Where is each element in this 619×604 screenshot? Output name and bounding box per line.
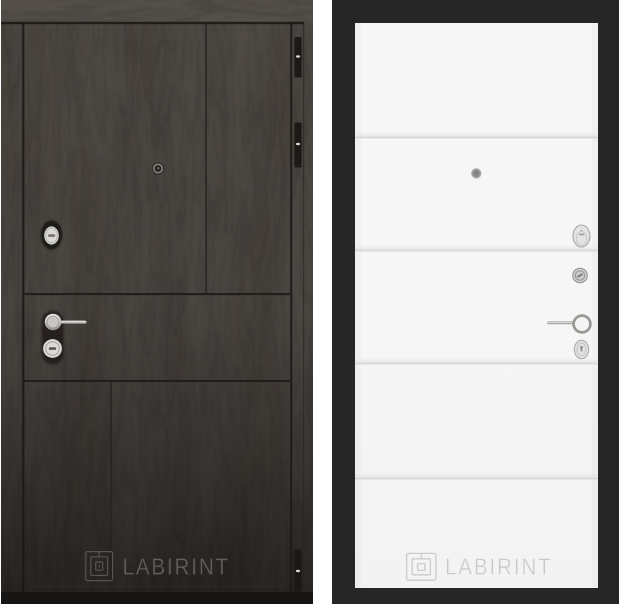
svg-text:LABIRINT: LABIRINT	[445, 554, 553, 580]
svg-text:LABIRINT: LABIRINT	[123, 554, 231, 580]
